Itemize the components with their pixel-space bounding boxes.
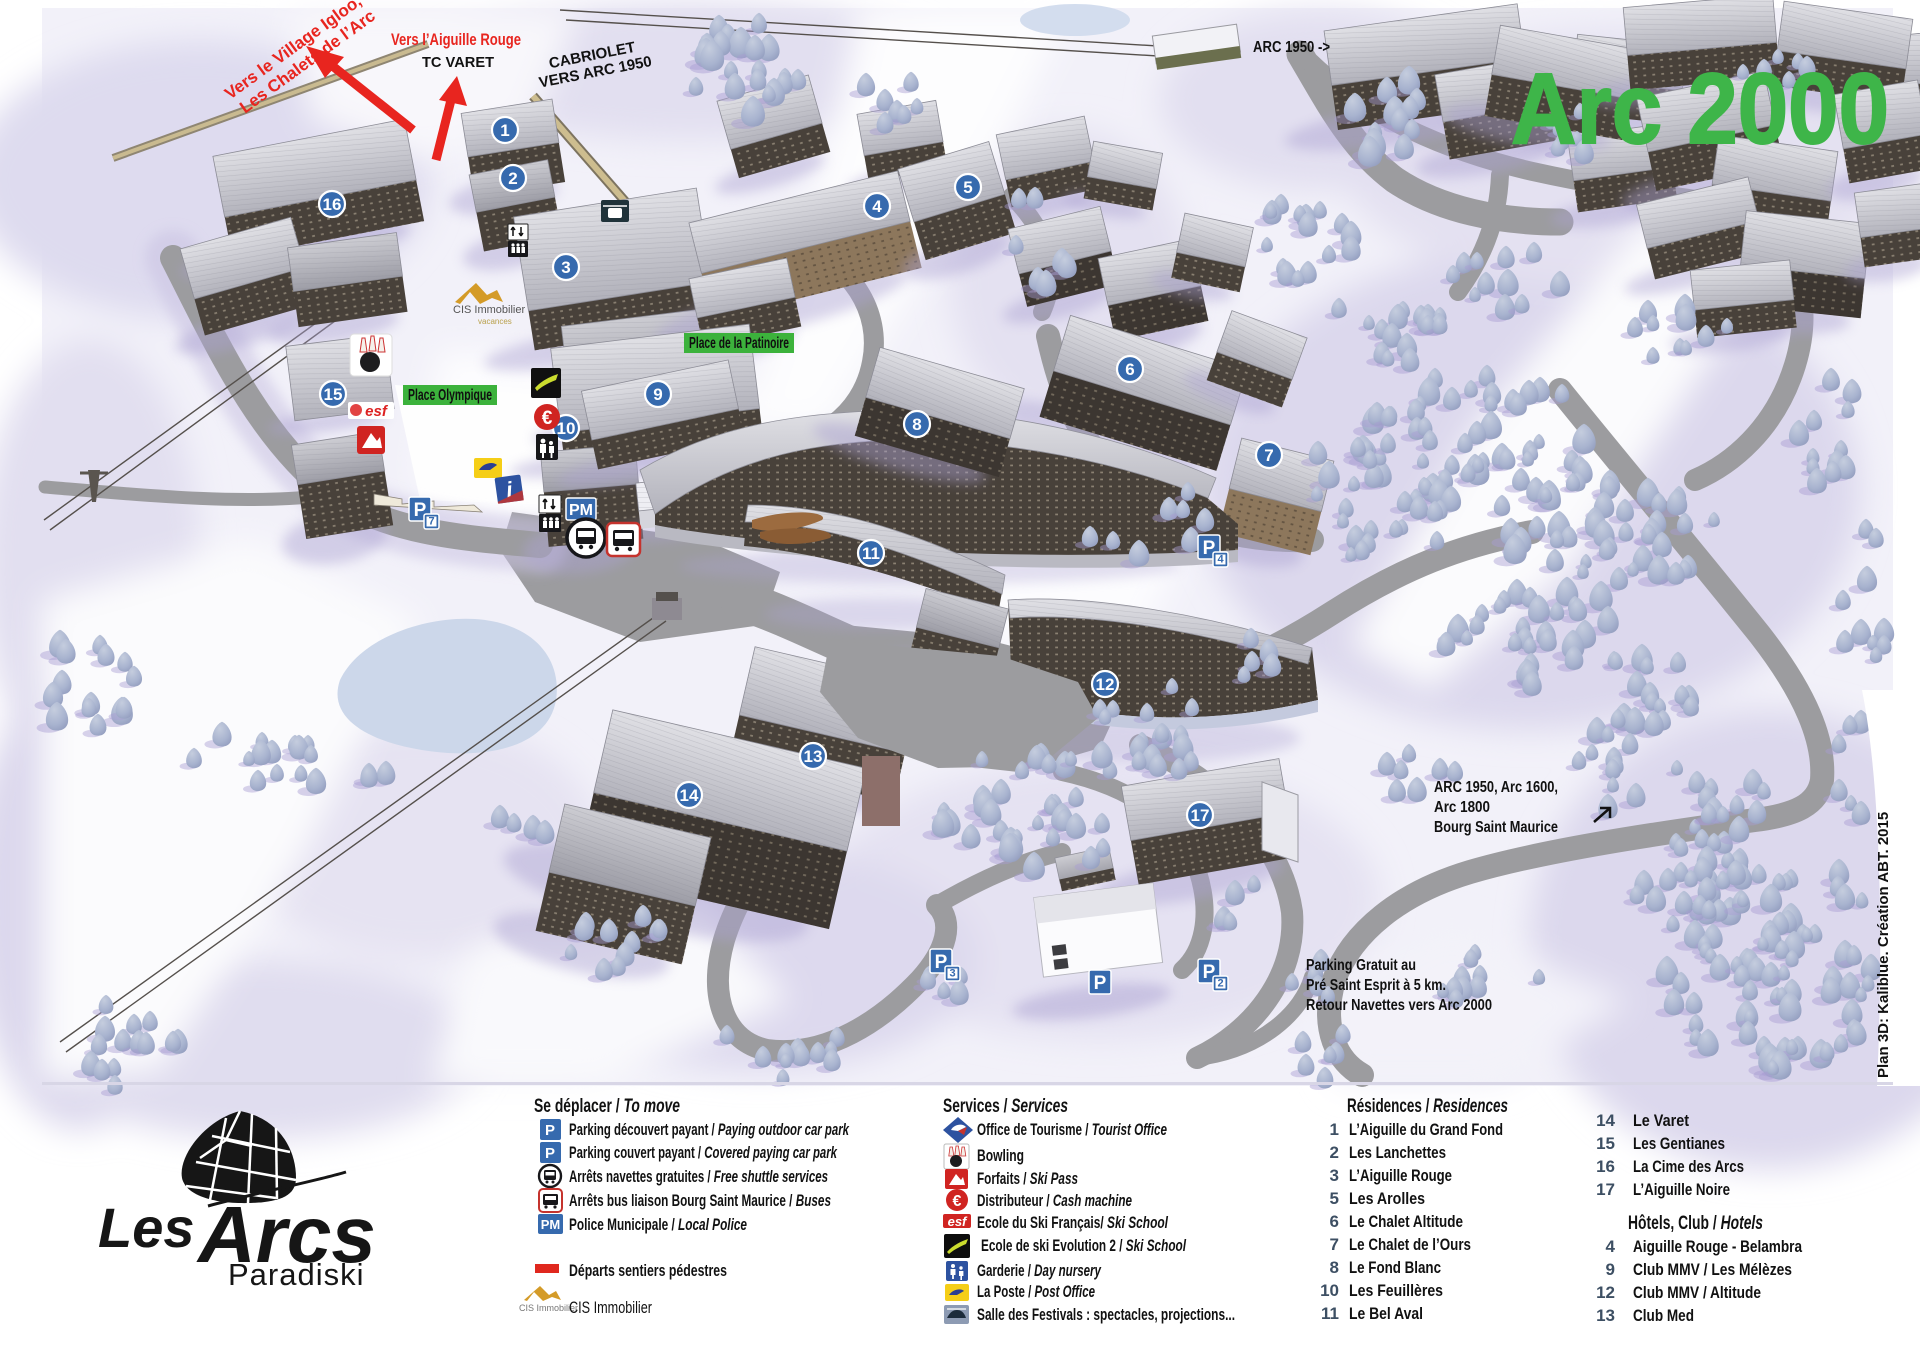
svg-text:Les Feuillères: Les Feuillères xyxy=(1349,1281,1443,1300)
svg-text:Distributeur / Cash machine: Distributeur / Cash machine xyxy=(977,1191,1132,1210)
svg-text:PM: PM xyxy=(541,1217,561,1232)
svg-text:10: 10 xyxy=(557,419,576,438)
svg-text:9: 9 xyxy=(1606,1260,1615,1279)
svg-text:Arc 2000: Arc 2000 xyxy=(1511,53,1889,165)
svg-text:Vers l’Aiguille Rouge: Vers l’Aiguille Rouge xyxy=(391,30,521,49)
svg-text:Arrêts bus liaison Bourg Saint: Arrêts bus liaison Bourg Saint Maurice /… xyxy=(569,1191,831,1210)
svg-text:Le Chalet de l’Ours: Le Chalet de l’Ours xyxy=(1349,1235,1471,1254)
svg-text:Forfaits / Ski Pass: Forfaits / Ski Pass xyxy=(977,1169,1078,1188)
svg-text:3: 3 xyxy=(1330,1166,1339,1185)
svg-text:Départs sentiers pédestres: Départs sentiers pédestres xyxy=(569,1261,727,1280)
svg-text:12: 12 xyxy=(1596,1283,1615,1302)
svg-text:Ecole du Ski Français/ Ski Sch: Ecole du Ski Français/ Ski School xyxy=(977,1213,1169,1232)
svg-text:Se déplacer / To move: Se déplacer / To move xyxy=(534,1096,680,1117)
svg-text:Club MMV / Les Mélèzes: Club MMV / Les Mélèzes xyxy=(1633,1260,1792,1279)
svg-text:Les Lanchettes: Les Lanchettes xyxy=(1349,1143,1446,1162)
svg-text:L’Aiguille Rouge: L’Aiguille Rouge xyxy=(1349,1166,1452,1185)
svg-text:Résidences / Residences: Résidences / Residences xyxy=(1347,1096,1508,1117)
svg-text:Services / Services: Services / Services xyxy=(943,1096,1068,1117)
svg-text:17: 17 xyxy=(1596,1180,1615,1199)
svg-text:4: 4 xyxy=(1217,554,1224,566)
svg-text:14: 14 xyxy=(680,786,699,805)
svg-text:7: 7 xyxy=(428,516,434,528)
svg-text:2: 2 xyxy=(508,169,517,188)
svg-text:Le Bel Aval: Le Bel Aval xyxy=(1349,1304,1423,1323)
svg-text:16: 16 xyxy=(1596,1157,1615,1176)
svg-text:Place de la Patinoire: Place de la Patinoire xyxy=(689,335,789,352)
svg-text:5: 5 xyxy=(1330,1189,1339,1208)
svg-text:P: P xyxy=(545,1145,555,1162)
svg-text:Aiguille Rouge - Belambra: Aiguille Rouge - Belambra xyxy=(1633,1237,1802,1256)
svg-text:Paradiski: Paradiski xyxy=(228,1257,365,1292)
svg-text:5: 5 xyxy=(963,178,972,197)
svg-text:13: 13 xyxy=(804,747,823,766)
svg-text:17: 17 xyxy=(1191,806,1210,825)
svg-text:CIS Immobilier: CIS Immobilier xyxy=(569,1298,652,1317)
svg-text:Club MMV / Altitude: Club MMV / Altitude xyxy=(1633,1283,1761,1302)
svg-text:ARC 1950 ->: ARC 1950 -> xyxy=(1253,39,1330,56)
svg-text:Parking couvert payant / Cover: Parking couvert payant / Covered paying … xyxy=(569,1143,838,1162)
svg-text:Le Chalet Altitude: Le Chalet Altitude xyxy=(1349,1212,1463,1231)
svg-text:7: 7 xyxy=(1330,1235,1339,1254)
svg-text:€: € xyxy=(953,1193,962,1210)
svg-text:Le Fond Blanc: Le Fond Blanc xyxy=(1349,1258,1441,1277)
svg-text:Arrêts navettes gratuites / Fr: Arrêts navettes gratuites / Free shuttle… xyxy=(569,1167,828,1186)
svg-text:8: 8 xyxy=(1330,1258,1339,1277)
svg-text:6: 6 xyxy=(1330,1212,1339,1231)
svg-text:1: 1 xyxy=(1330,1120,1339,1139)
svg-text:Place Olympique: Place Olympique xyxy=(408,387,492,404)
svg-text:PM: PM xyxy=(569,502,593,519)
svg-text:Les Gentianes: Les Gentianes xyxy=(1633,1134,1725,1153)
svg-text:Parking découvert payant / Pay: Parking découvert payant / Paying outdoo… xyxy=(569,1120,850,1139)
svg-text:Les Arolles: Les Arolles xyxy=(1349,1189,1425,1208)
svg-text:15: 15 xyxy=(1596,1134,1615,1153)
svg-text:Salle des Festivals : spectacl: Salle des Festivals : spectacles, projec… xyxy=(977,1305,1235,1324)
svg-text:8: 8 xyxy=(912,415,921,434)
svg-text:2: 2 xyxy=(1330,1143,1339,1162)
svg-text:2: 2 xyxy=(1217,978,1223,990)
svg-text:€: € xyxy=(542,408,553,429)
svg-text:Police Municipale / Local Poli: Police Municipale / Local Police xyxy=(569,1215,747,1234)
svg-text:13: 13 xyxy=(1596,1306,1615,1325)
svg-text:Club Med: Club Med xyxy=(1633,1306,1694,1325)
svg-text:Ecole de ski Evolution 2 / Ski: Ecole de ski Evolution 2 / Ski School xyxy=(981,1236,1187,1255)
svg-text:esf: esf xyxy=(948,1214,968,1229)
svg-text:P: P xyxy=(1094,973,1107,994)
svg-text:3: 3 xyxy=(561,258,570,277)
svg-text:16: 16 xyxy=(323,195,342,214)
svg-text:11: 11 xyxy=(862,544,880,563)
svg-text:La Poste / Post Office: La Poste / Post Office xyxy=(977,1282,1095,1301)
svg-text:4: 4 xyxy=(1606,1237,1616,1256)
svg-text:Hôtels, Club / Hotels: Hôtels, Club / Hotels xyxy=(1628,1213,1763,1234)
svg-text:Garderie / Day nursery: Garderie / Day nursery xyxy=(977,1261,1102,1280)
svg-text:15: 15 xyxy=(324,385,343,404)
svg-text:4: 4 xyxy=(872,197,882,216)
svg-text:1: 1 xyxy=(500,121,509,140)
svg-text:vacances: vacances xyxy=(478,317,512,326)
svg-text:Les: Les xyxy=(98,1196,195,1259)
svg-text:Plan 3D: Kaliblue. Création AB: Plan 3D: Kaliblue. Création ABT. 2015 xyxy=(1875,812,1892,1078)
svg-text:L’Aiguille Noire: L’Aiguille Noire xyxy=(1633,1180,1730,1199)
svg-text:10: 10 xyxy=(1320,1281,1339,1300)
svg-text:12: 12 xyxy=(1096,675,1115,694)
svg-text:14: 14 xyxy=(1596,1111,1615,1130)
svg-text:3: 3 xyxy=(949,968,955,980)
svg-text:9: 9 xyxy=(653,385,662,404)
svg-text:11: 11 xyxy=(1321,1304,1339,1323)
svg-text:P: P xyxy=(545,1122,555,1139)
svg-text:Bowling: Bowling xyxy=(977,1146,1024,1165)
svg-text:7: 7 xyxy=(1264,446,1273,465)
svg-text:CIS Immobilier: CIS Immobilier xyxy=(453,304,525,316)
svg-text:La Cime des Arcs: La Cime des Arcs xyxy=(1633,1157,1744,1176)
svg-text:Office de Tourisme / Tourist O: Office de Tourisme / Tourist Office xyxy=(977,1120,1167,1139)
svg-text:esf: esf xyxy=(365,403,389,420)
svg-text:6: 6 xyxy=(1125,360,1134,379)
svg-text:Le Varet: Le Varet xyxy=(1633,1111,1689,1130)
svg-text:TC VARET: TC VARET xyxy=(422,54,494,71)
svg-text:L’Aiguille du Grand Fond: L’Aiguille du Grand Fond xyxy=(1349,1120,1503,1139)
